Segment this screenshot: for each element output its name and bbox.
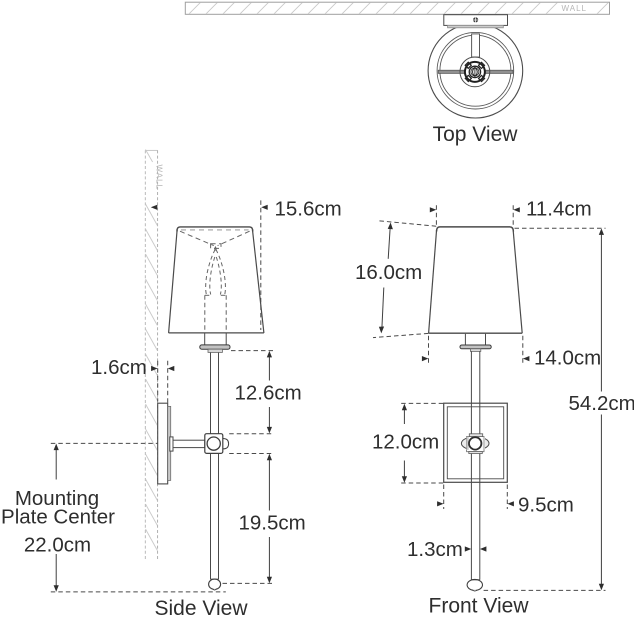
svg-text:19.5cm: 19.5cm: [239, 512, 306, 535]
svg-text:WALL: WALL: [562, 4, 588, 13]
svg-text:WALL: WALL: [154, 165, 163, 191]
svg-text:14.0cm: 14.0cm: [534, 347, 601, 370]
svg-text:16.0cm: 16.0cm: [355, 261, 422, 284]
svg-text:Front View: Front View: [429, 595, 530, 618]
svg-text:15.6cm: 15.6cm: [275, 198, 342, 221]
svg-text:1.6cm: 1.6cm: [91, 356, 147, 379]
svg-text:54.2cm: 54.2cm: [569, 392, 634, 415]
svg-text:22.0cm: 22.0cm: [24, 534, 91, 557]
svg-text:Side View: Side View: [154, 597, 248, 620]
svg-text:1.3cm: 1.3cm: [407, 538, 463, 561]
svg-text:Top View: Top View: [433, 123, 519, 146]
svg-text:12.0cm: 12.0cm: [372, 431, 439, 454]
svg-text:12.6cm: 12.6cm: [235, 382, 302, 405]
svg-text:9.5cm: 9.5cm: [518, 494, 574, 517]
svg-text:11.4cm: 11.4cm: [526, 198, 592, 221]
svg-text:Plate Center: Plate Center: [1, 506, 115, 529]
